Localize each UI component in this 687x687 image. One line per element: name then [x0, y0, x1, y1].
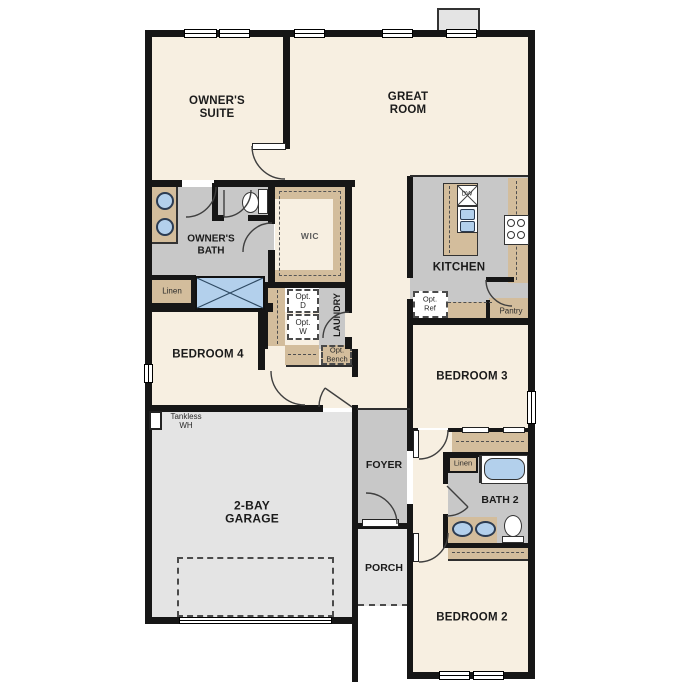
room-label-kitchen: KITCHEN — [409, 262, 509, 275]
room-label-bedroom3: BEDROOM 3 — [412, 371, 532, 384]
burner — [517, 219, 525, 227]
window — [473, 671, 504, 680]
wall — [145, 180, 182, 187]
label-opt-ref: Opt. Ref — [420, 295, 440, 312]
burner — [507, 219, 515, 227]
counter-dashline — [268, 290, 278, 344]
wall — [283, 37, 290, 149]
wall — [145, 275, 196, 280]
wall — [345, 180, 352, 313]
room-label-foyer: FOYER — [354, 459, 414, 471]
closet-dashline — [456, 441, 524, 442]
label-opt-d: Opt. D — [294, 292, 312, 310]
garage-door-outline — [177, 557, 334, 617]
burner — [517, 231, 525, 239]
wall — [212, 215, 224, 221]
door-leaf — [413, 533, 419, 562]
label-dishwasher: DW — [459, 190, 475, 197]
bathtub — [484, 458, 525, 480]
wall — [407, 318, 535, 325]
sink — [475, 521, 496, 537]
wall — [443, 543, 535, 548]
sliding-closet-door — [462, 427, 489, 433]
sliding-closet-door — [503, 427, 525, 433]
floor-edge — [357, 408, 410, 410]
counter-dashline — [448, 302, 492, 303]
label-tankless-wh: Tankless WH — [164, 412, 208, 430]
room-label-bath2: BATH 2 — [470, 494, 530, 506]
window — [184, 29, 217, 38]
window — [446, 29, 477, 38]
bedroom4-closet — [285, 345, 319, 365]
wall — [145, 30, 152, 624]
toilet-bowl — [242, 192, 259, 213]
room-label-owners-bath: OWNER'S BATH — [180, 234, 242, 257]
sink-basin — [460, 209, 475, 220]
door-leaf — [362, 519, 399, 527]
window — [439, 671, 470, 680]
wall — [265, 282, 352, 288]
room-label-bedroom2: BEDROOM 2 — [412, 612, 532, 625]
floor-plan: OWNER'S SUITE GREAT ROOM OWNER'S BATH WI… — [0, 0, 687, 687]
closet-edge — [286, 365, 353, 367]
room-label-bedroom4: BEDROOM 4 — [148, 349, 268, 362]
room-label-laundry: LAUNDRY — [332, 293, 342, 337]
toilet-base — [502, 536, 524, 543]
sink — [452, 521, 473, 537]
closet-dashline — [288, 354, 316, 355]
room-label-great-room: GREAT ROOM — [373, 91, 443, 117]
toilet-tank — [258, 189, 268, 214]
wall — [212, 183, 218, 219]
window — [219, 29, 250, 38]
room-label-garage: 2-BAY GARAGE — [210, 500, 295, 527]
window — [527, 391, 536, 424]
label-opt-w: Opt. W — [294, 318, 312, 336]
burner — [507, 231, 515, 239]
room-label-owners-suite: OWNER'S SUITE — [172, 95, 262, 121]
garage-door-threshold — [179, 617, 332, 624]
floor-edge — [410, 175, 528, 177]
sink — [156, 192, 174, 210]
closet-dashline — [452, 552, 524, 553]
shower — [195, 276, 265, 310]
label-opt-bench: Opt. Bench — [322, 346, 352, 363]
door-leaf — [252, 143, 286, 150]
wall — [352, 624, 358, 682]
door-leaf — [413, 430, 419, 458]
bedroom3-closet — [452, 432, 528, 453]
label-pantry: Pantry — [494, 306, 528, 315]
tankless-water-heater — [149, 411, 162, 430]
closet-edge — [448, 559, 528, 561]
label-linen-left: Linen — [155, 286, 189, 295]
hallway-floor — [352, 176, 410, 408]
wall — [248, 215, 274, 221]
wall — [528, 30, 535, 679]
sink-basin — [460, 221, 475, 232]
room-label-wic: WIC — [290, 231, 330, 241]
wall — [352, 349, 358, 377]
sink — [156, 218, 174, 236]
window — [294, 29, 325, 38]
wall — [352, 405, 358, 624]
island-dashline — [444, 186, 450, 253]
wall — [407, 504, 413, 679]
window — [382, 29, 413, 38]
window — [144, 364, 153, 383]
wall — [145, 617, 180, 624]
wall — [214, 180, 355, 187]
toilet-bowl — [504, 515, 522, 537]
room-label-porch: PORCH — [354, 562, 414, 574]
label-linen-right: Linen — [448, 460, 478, 469]
